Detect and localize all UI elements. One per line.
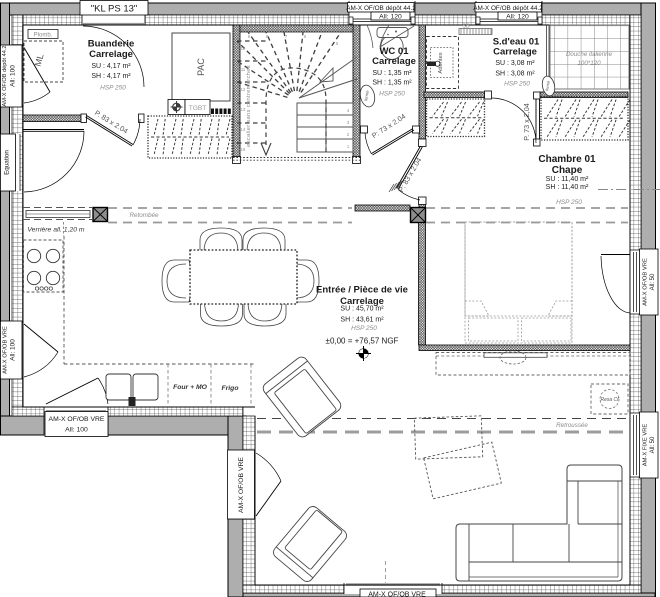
svg-text:SU : 3,08 m²: SU : 3,08 m² xyxy=(495,60,535,67)
svg-text:Retombée: Retombée xyxy=(129,212,159,219)
svg-text:SH : 11,40 m²: SH : 11,40 m² xyxy=(546,184,589,191)
svg-text:AM-X OF/OB VRE: AM-X OF/OB VRE xyxy=(643,258,649,306)
svg-text:HSP 250: HSP 250 xyxy=(100,85,126,92)
svg-text:AM-X OF/OB VRE: AM-X OF/OB VRE xyxy=(368,592,426,597)
svg-text:Verrière all. 1,20 m: Verrière all. 1,20 m xyxy=(27,227,85,234)
svg-text:"KL PS 13": "KL PS 13" xyxy=(91,4,138,15)
svg-text:SU : 4,17 m²: SU : 4,17 m² xyxy=(91,63,131,70)
svg-text:AM-X OF/OB VRE: AM-X OF/OB VRE xyxy=(3,326,9,374)
svg-text:SU : 1,35 m²: SU : 1,35 m² xyxy=(372,70,412,77)
svg-text:AM-X OF/OB VRE: AM-X OF/OB VRE xyxy=(49,416,105,423)
svg-text:10: 10 xyxy=(241,46,246,51)
svg-text:SH : 1,35 m²: SH : 1,35 m² xyxy=(372,80,412,87)
svg-text:AM-X FIXE VRE: AM-X FIXE VRE xyxy=(643,424,649,467)
svg-text:Equation: Equation xyxy=(4,150,11,175)
svg-text:Frigo: Frigo xyxy=(222,385,239,392)
svg-text:Entrée / Pièce de vie: Entrée / Pièce de vie xyxy=(316,285,408,296)
svg-text:AM-X OF/OB dépôt 44.2: AM-X OF/OB dépôt 44.2 xyxy=(2,46,8,107)
svg-text:Buanderie: Buanderie xyxy=(88,39,134,50)
svg-text:All: 120: All: 120 xyxy=(506,14,529,21)
svg-text:AM-X OF/OB dépôt 44.2: AM-X OF/OB dépôt 44.2 xyxy=(346,5,416,12)
svg-text:SH : 43,61 m²: SH : 43,61 m² xyxy=(340,317,384,324)
svg-text:AM-X OF/OB VRE: AM-X OF/OB VRE xyxy=(238,457,245,513)
svg-text:Four + MO: Four + MO xyxy=(173,384,208,391)
svg-text:SH : 3,08 m²: SH : 3,08 m² xyxy=(495,71,535,78)
svg-text:escalier sans contremarches: escalier sans contremarches xyxy=(246,65,252,147)
svg-text:Chape: Chape xyxy=(552,165,583,176)
svg-text:All: 100: All: 100 xyxy=(10,339,17,361)
svg-text:Resa Cf: Resa Cf xyxy=(600,397,619,403)
svg-text:Carrelage: Carrelage xyxy=(89,49,133,60)
svg-text:SH : 4,17 m²: SH : 4,17 m² xyxy=(91,73,131,80)
svg-text:SU : 11,40 m²: SU : 11,40 m² xyxy=(546,176,589,183)
svg-text:All: 120: All: 120 xyxy=(379,14,402,21)
svg-text:HSP 250: HSP 250 xyxy=(351,325,377,332)
svg-text:All: 50: All: 50 xyxy=(650,273,656,290)
svg-text:Carrelage: Carrelage xyxy=(372,56,416,67)
svg-text:P. 73 x 2,04: P. 73 x 2,04 xyxy=(522,103,531,140)
svg-text:Carrelage: Carrelage xyxy=(493,47,537,58)
svg-text:±0,00 = +76,57 NGF: ±0,00 = +76,57 NGF xyxy=(326,337,399,346)
svg-text:Plomb.: Plomb. xyxy=(34,33,53,39)
svg-text:HSP 250: HSP 250 xyxy=(504,81,530,88)
svg-text:Attentes: Attentes xyxy=(438,52,444,73)
svg-text:HSP 250: HSP 250 xyxy=(556,199,582,206)
svg-text:All: 50: All: 50 xyxy=(650,436,656,453)
svg-text:100*120: 100*120 xyxy=(577,60,601,67)
svg-text:Douche italienne: Douche italienne xyxy=(566,51,613,58)
svg-text:Retroussée: Retroussée xyxy=(556,422,588,429)
svg-text:AM-X OF/OB dépôt 44.2: AM-X OF/OB dépôt 44.2 xyxy=(473,5,543,12)
svg-text:All: 100: All: 100 xyxy=(65,427,88,434)
svg-text:SU : 45,70 m²: SU : 45,70 m² xyxy=(340,306,384,313)
svg-text:PAC: PAC xyxy=(196,58,206,76)
svg-text:Chambre 01: Chambre 01 xyxy=(538,154,596,165)
svg-text:TGBT: TGBT xyxy=(189,105,207,112)
svg-text:All: 100: All: 100 xyxy=(10,65,17,87)
svg-text:HSP 250: HSP 250 xyxy=(379,91,405,98)
